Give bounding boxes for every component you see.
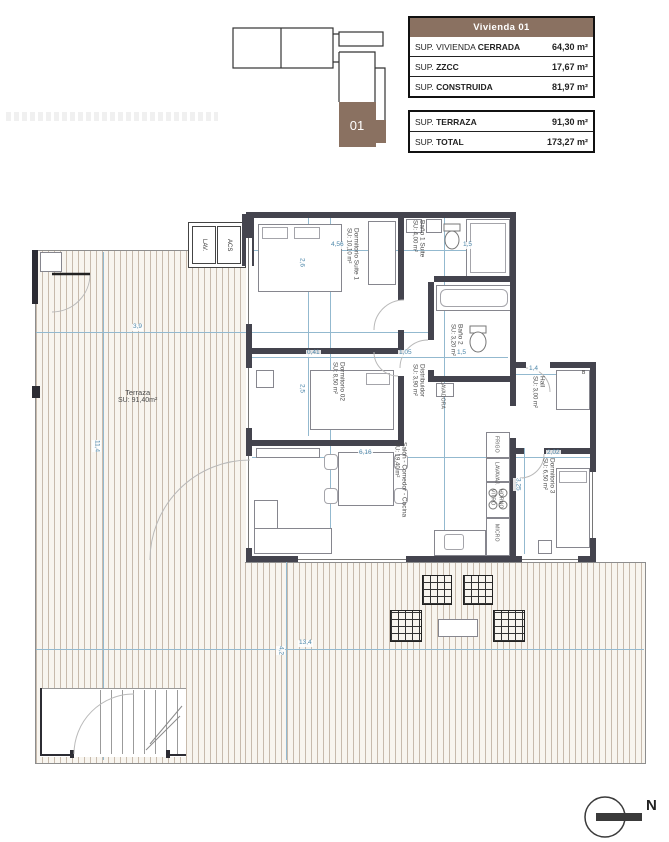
dimension-label: 1,5	[456, 350, 467, 357]
appliance-label: LAVAVAJ.	[493, 462, 499, 485]
appliance-label: LAVADORA	[439, 381, 445, 409]
dimension-label: 3,9	[132, 324, 143, 331]
room-label-distribuidor: DistribuidorSU: 3,90 m²	[410, 364, 426, 397]
room-label-salon-comedor-cocina: Salón - Comedor - CocinaSU: 19,40 m²	[392, 442, 408, 517]
room-label-dormitorio-3: Dormitorio 3SU: 6,50 m²	[540, 458, 556, 493]
appliance-label: VITRO	[489, 489, 495, 505]
dimension-label: 6,16	[358, 450, 373, 457]
dimension-label: 2,02	[546, 450, 561, 457]
appliance-label: FRIGO	[493, 436, 499, 453]
dimension-label: 4,2	[276, 646, 285, 655]
dimension-label: 0,41	[306, 350, 321, 357]
appliance-label: HORNO	[497, 489, 503, 509]
hall-closet-label: B	[582, 370, 585, 376]
dimension-label: 13,4	[298, 640, 313, 647]
north-indicator: N	[572, 790, 668, 840]
dimension-label: 1,4	[528, 366, 539, 373]
north-label: N	[646, 797, 657, 814]
floor-plan-page: 01 Vivienda 01 SUP. VIVIENDA CERRADA64,3…	[0, 0, 669, 842]
dimension-label: 11,4	[92, 440, 101, 452]
dimension-label: 1,5	[462, 242, 473, 249]
dimension-label: 2,5	[297, 384, 306, 393]
room-label-bano-1-suite: Baño 1 SuiteSU: 4,00 m²	[410, 220, 426, 257]
room-label-terraza: TerrazaSU: 91,40m²	[118, 388, 157, 406]
dimension-label: 1,05	[398, 350, 413, 357]
dimension-label: 4,56	[330, 242, 345, 249]
plan-overlay	[0, 0, 669, 842]
room-label-dormitorio-02: Dormitorio 02SU: 8,50 m²	[330, 362, 346, 401]
room-label-hall: HallSU: 3,00 m²	[530, 376, 546, 408]
room-label-dormitorio-suite-1: Dormitorio Suite 1SU: 10,10 m²	[344, 228, 360, 280]
appliance-label: MICRO	[493, 524, 499, 542]
dimension-label: 2,6	[297, 258, 306, 267]
dimension-label: 3,25	[513, 478, 522, 491]
